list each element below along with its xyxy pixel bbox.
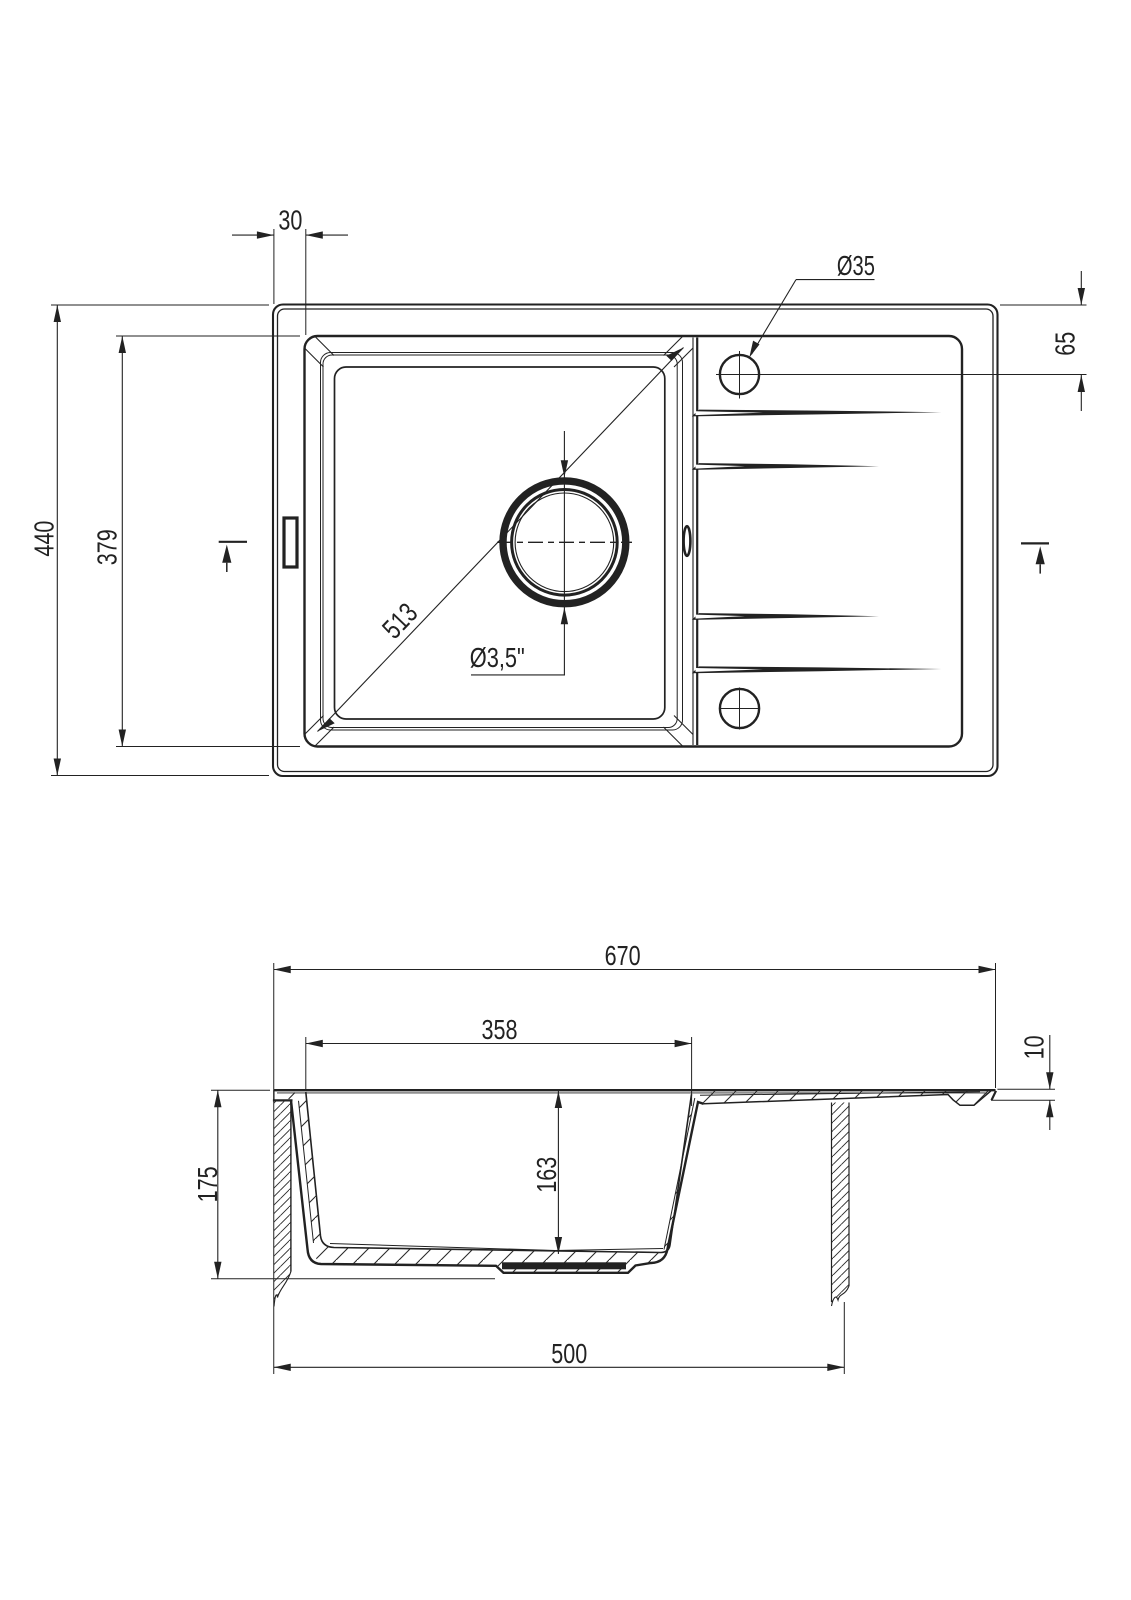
svg-text:30: 30 [278, 205, 302, 236]
svg-text:65: 65 [1049, 332, 1080, 356]
svg-text:513: 513 [376, 597, 423, 644]
svg-text:10: 10 [1018, 1035, 1049, 1059]
svg-text:379: 379 [92, 529, 123, 565]
svg-text:670: 670 [605, 940, 641, 971]
svg-text:500: 500 [551, 1338, 587, 1369]
svg-text:163: 163 [531, 1157, 562, 1193]
svg-text:358: 358 [482, 1014, 518, 1045]
svg-text:Ø3,5": Ø3,5" [470, 642, 525, 673]
svg-text:Ø35: Ø35 [837, 250, 875, 281]
svg-text:440: 440 [29, 521, 60, 557]
svg-text:175: 175 [192, 1166, 223, 1202]
